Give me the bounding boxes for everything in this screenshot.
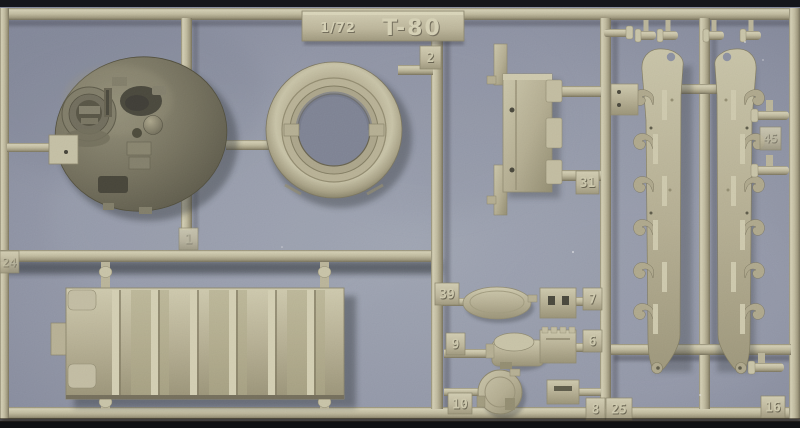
sprue-photo: 1/72 1/72 T-80 T-80 — [0, 0, 800, 428]
photo-artifacts — [0, 0, 800, 428]
scan-edge-bottom — [0, 421, 800, 428]
sprue-photo-canvas: 1/72 1/72 T-80 T-80 — [0, 0, 800, 428]
film-grain — [0, 0, 800, 428]
scan-edge-top — [0, 0, 800, 7]
